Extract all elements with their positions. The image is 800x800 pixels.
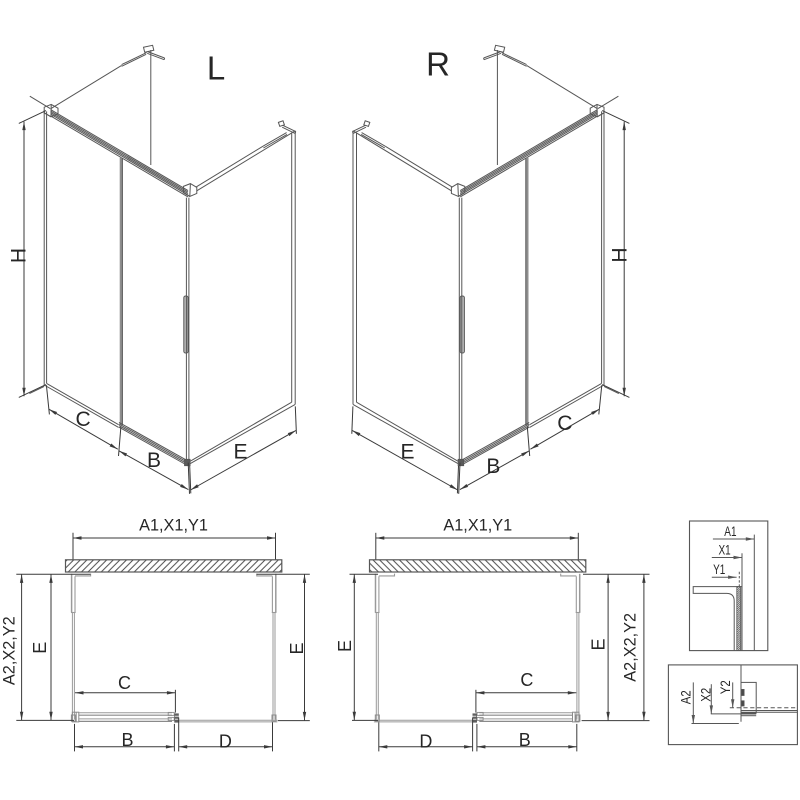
svg-text:A2,X2,Y2: A2,X2,Y2 bbox=[1, 616, 19, 685]
svg-text:E: E bbox=[233, 441, 247, 464]
svg-text:X1: X1 bbox=[719, 543, 731, 559]
svg-text:B: B bbox=[121, 730, 133, 750]
svg-text:C: C bbox=[520, 670, 533, 690]
svg-text:C: C bbox=[76, 408, 91, 431]
svg-text:A2: A2 bbox=[679, 690, 695, 704]
svg-text:E: E bbox=[400, 441, 414, 464]
svg-text:E: E bbox=[30, 642, 50, 654]
svg-text:X2: X2 bbox=[699, 688, 715, 702]
svg-text:D: D bbox=[219, 732, 232, 752]
svg-text:L: L bbox=[207, 50, 225, 87]
svg-text:A1,X1,Y1: A1,X1,Y1 bbox=[443, 517, 512, 535]
svg-text:R: R bbox=[426, 46, 450, 83]
svg-text:H: H bbox=[609, 247, 632, 262]
svg-text:B: B bbox=[486, 455, 500, 478]
svg-text:A2,X2,Y2: A2,X2,Y2 bbox=[621, 613, 639, 682]
svg-text:H: H bbox=[8, 248, 31, 263]
svg-text:Y1: Y1 bbox=[713, 562, 725, 578]
svg-text:E: E bbox=[588, 638, 608, 650]
svg-text:Y2: Y2 bbox=[718, 680, 734, 694]
svg-text:A1,X1,Y1: A1,X1,Y1 bbox=[139, 517, 208, 535]
svg-text:D: D bbox=[419, 732, 432, 752]
svg-text:C: C bbox=[557, 412, 572, 435]
svg-text:C: C bbox=[118, 673, 131, 693]
svg-text:E: E bbox=[335, 640, 355, 652]
svg-text:B: B bbox=[147, 449, 161, 472]
svg-text:A1: A1 bbox=[724, 524, 736, 540]
svg-text:B: B bbox=[519, 730, 531, 750]
svg-text:E: E bbox=[287, 642, 307, 654]
